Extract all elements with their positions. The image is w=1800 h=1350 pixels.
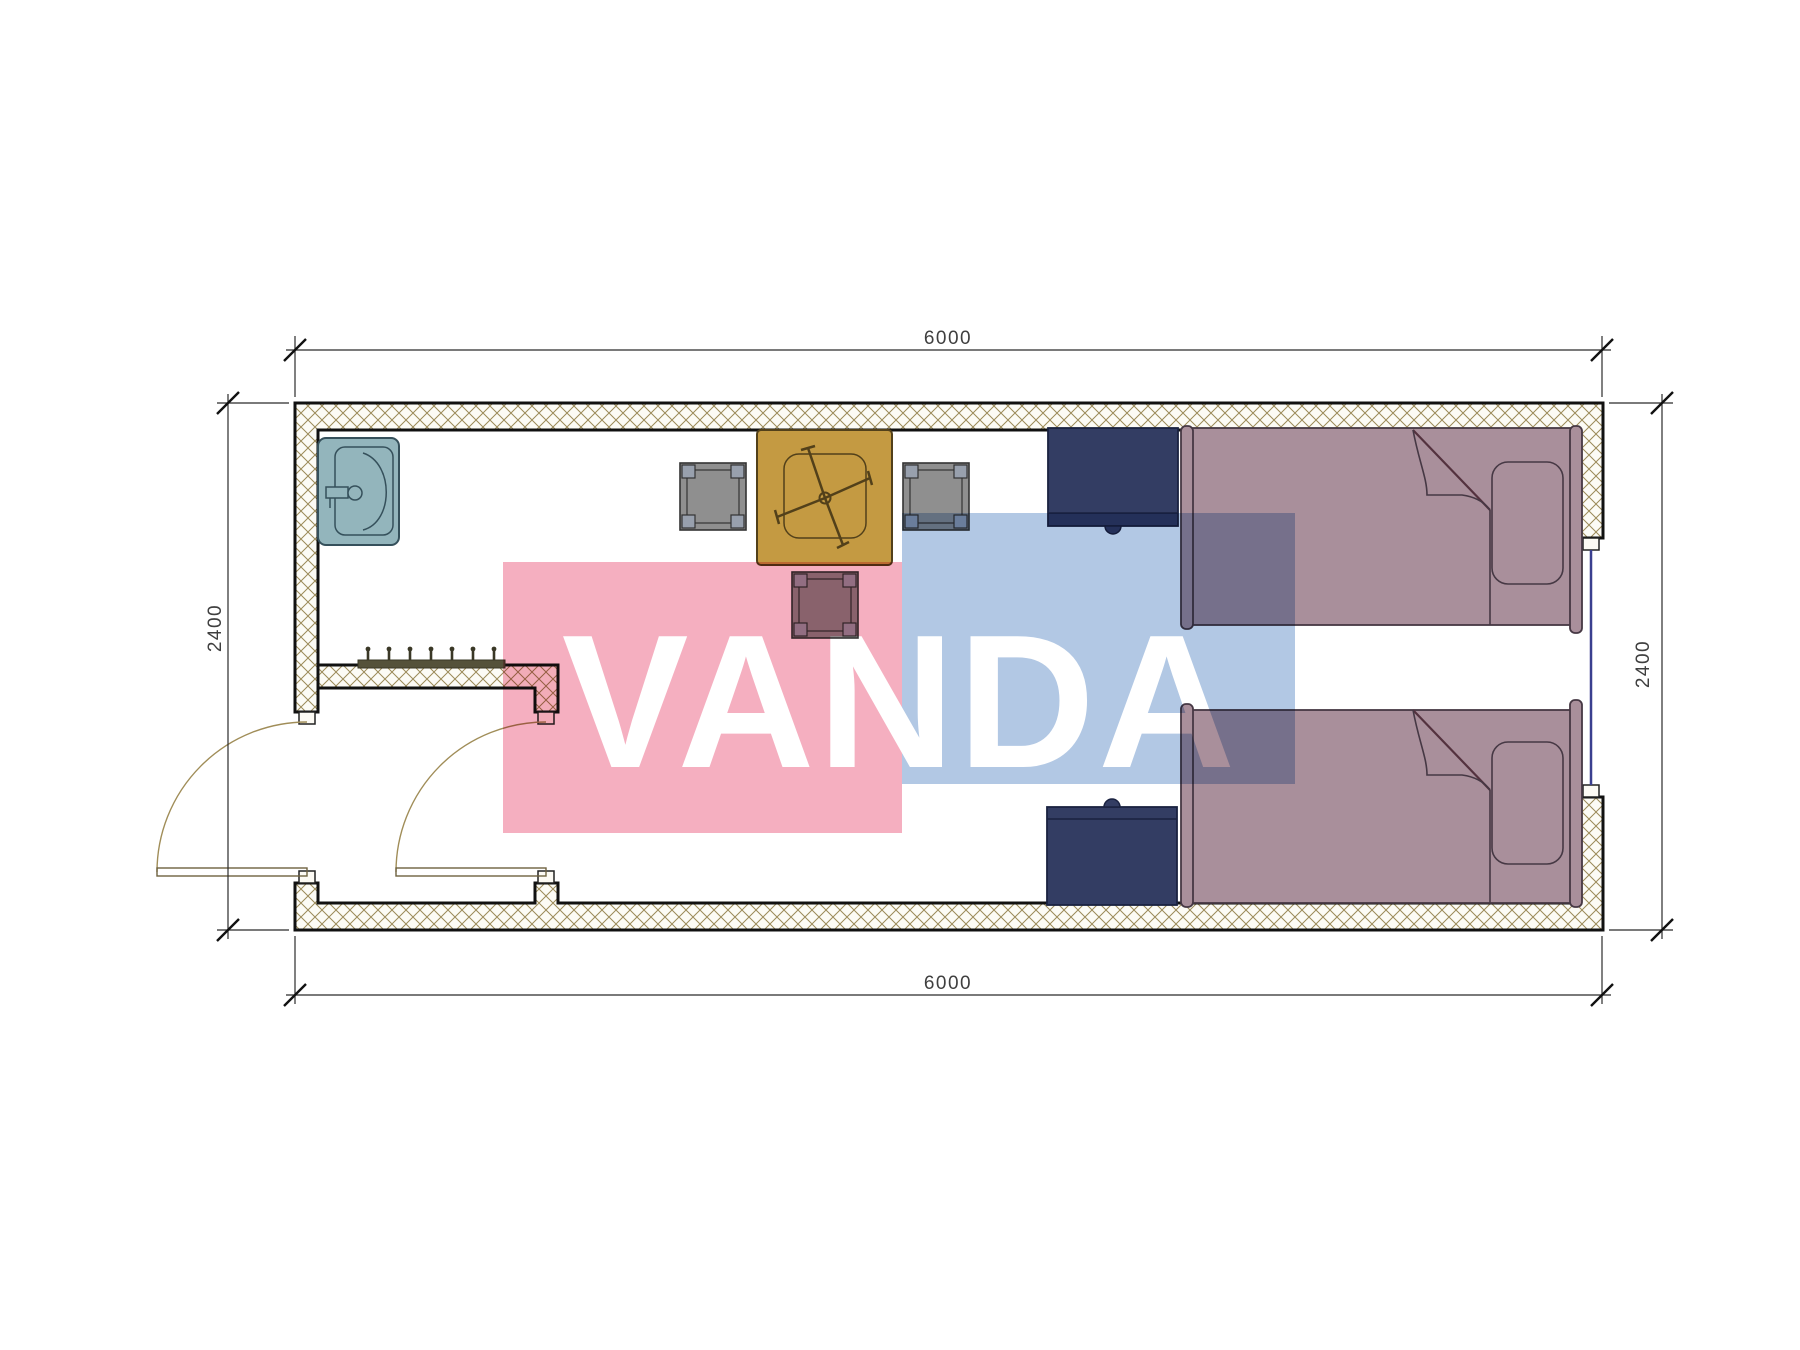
entry-door (157, 722, 307, 876)
dimension-label-right: 2400 (1633, 640, 1654, 688)
chair-left (680, 463, 746, 530)
dimension-left: 2400 (205, 392, 289, 941)
dimension-label-left: 2400 (205, 604, 226, 652)
coat-rack-bar (358, 660, 505, 668)
coat-rack (358, 647, 505, 668)
nightstand-bottom (1047, 799, 1177, 905)
entry-door-leaf (157, 868, 307, 876)
floor-plan-drawing: VANDA (0, 0, 1800, 1350)
dining-table (757, 430, 892, 565)
dimension-top: 6000 (284, 328, 1613, 397)
interior-door-leaf (396, 868, 546, 876)
watermark-blue-block (902, 513, 1295, 784)
floor-plan-canvas: VANDA (0, 0, 1800, 1350)
window-jamb-bottom (1583, 785, 1599, 797)
nightstand-knob (1104, 799, 1120, 807)
bed-pillow (1492, 462, 1563, 584)
bed-headboard (1570, 700, 1582, 907)
nightstand-body (1048, 428, 1178, 526)
entry-door-swing-arc (157, 722, 307, 872)
bed-pillow (1492, 742, 1563, 864)
window-jamb-top (1583, 538, 1599, 550)
dimension-label-bottom: 6000 (924, 973, 972, 994)
sink-drain (348, 486, 362, 500)
dimension-right: 2400 (1609, 392, 1673, 941)
nightstand-body (1047, 807, 1177, 905)
bed-headboard (1570, 426, 1582, 633)
watermark (503, 513, 1295, 833)
coat-rack-hooks (366, 647, 497, 660)
sink (318, 438, 399, 545)
dimension-bottom: 6000 (284, 936, 1613, 1006)
window (1583, 538, 1599, 797)
dimension-label-top: 6000 (924, 328, 972, 349)
sink-faucet (326, 487, 348, 498)
watermark-pink-block (503, 562, 902, 833)
